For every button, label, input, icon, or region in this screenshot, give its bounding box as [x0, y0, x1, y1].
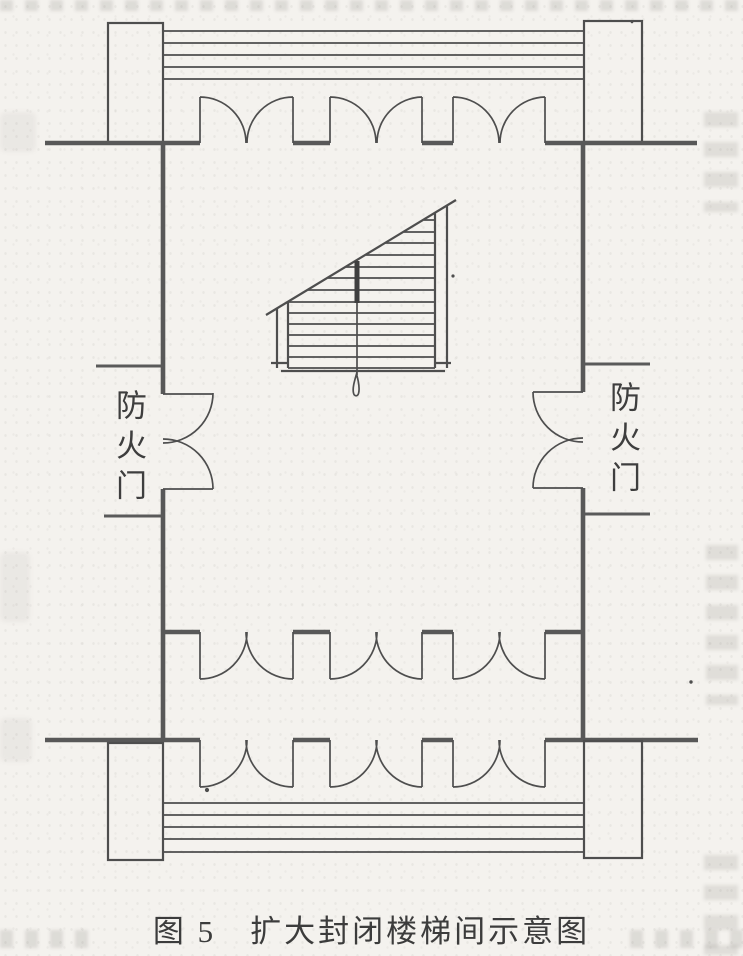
- page-bleed-artifact: [630, 930, 743, 948]
- fire-door-label-left: 防火门: [106, 389, 151, 509]
- top-left-column: [108, 23, 163, 143]
- bottom-double-doors: [200, 740, 545, 787]
- ink-speck: [631, 21, 634, 24]
- staircase-symbol: [266, 200, 456, 396]
- top-double-doors: [200, 97, 545, 143]
- scanned-figure-page: 防火门 防火门 图 5 扩大封闭楼梯间示意图: [0, 0, 743, 956]
- page-bleed-artifact: [0, 930, 90, 948]
- page-bleed-artifact: [0, 112, 36, 152]
- top-right-column: [584, 21, 642, 142]
- ink-speck: [689, 680, 692, 683]
- left-fire-door-swing: [163, 393, 213, 489]
- ink-speck: [451, 274, 454, 277]
- double-door-swing: [453, 97, 545, 143]
- top-slab-lines: [163, 31, 584, 79]
- page-bleed-artifact: [0, 552, 30, 622]
- double-door-swing: [330, 97, 422, 143]
- stair-direction-arrow: [353, 374, 359, 396]
- bottom-left-column: [108, 743, 163, 860]
- bottom-right-column: [584, 741, 642, 858]
- right-fire-door-swing: [533, 392, 583, 488]
- double-door-swing: [330, 632, 422, 679]
- double-door-swing: [330, 740, 422, 787]
- stair-treads: [288, 220, 435, 368]
- ink-speck: [205, 788, 209, 792]
- fire-door-label-right: 防火门: [600, 381, 645, 501]
- double-door-swing: [453, 632, 545, 679]
- page-bleed-artifact: [704, 112, 738, 212]
- page-bleed-artifact: [706, 545, 738, 705]
- double-door-swing: [200, 97, 293, 143]
- middle-double-doors: [200, 632, 545, 679]
- page-bleed-artifact: [0, 0, 743, 11]
- page-bleed-artifact: [0, 718, 32, 762]
- double-door-swing: [200, 632, 293, 679]
- double-door-swing: [200, 740, 293, 787]
- bottom-slab-lines: [163, 803, 584, 852]
- double-door-swing: [453, 740, 545, 787]
